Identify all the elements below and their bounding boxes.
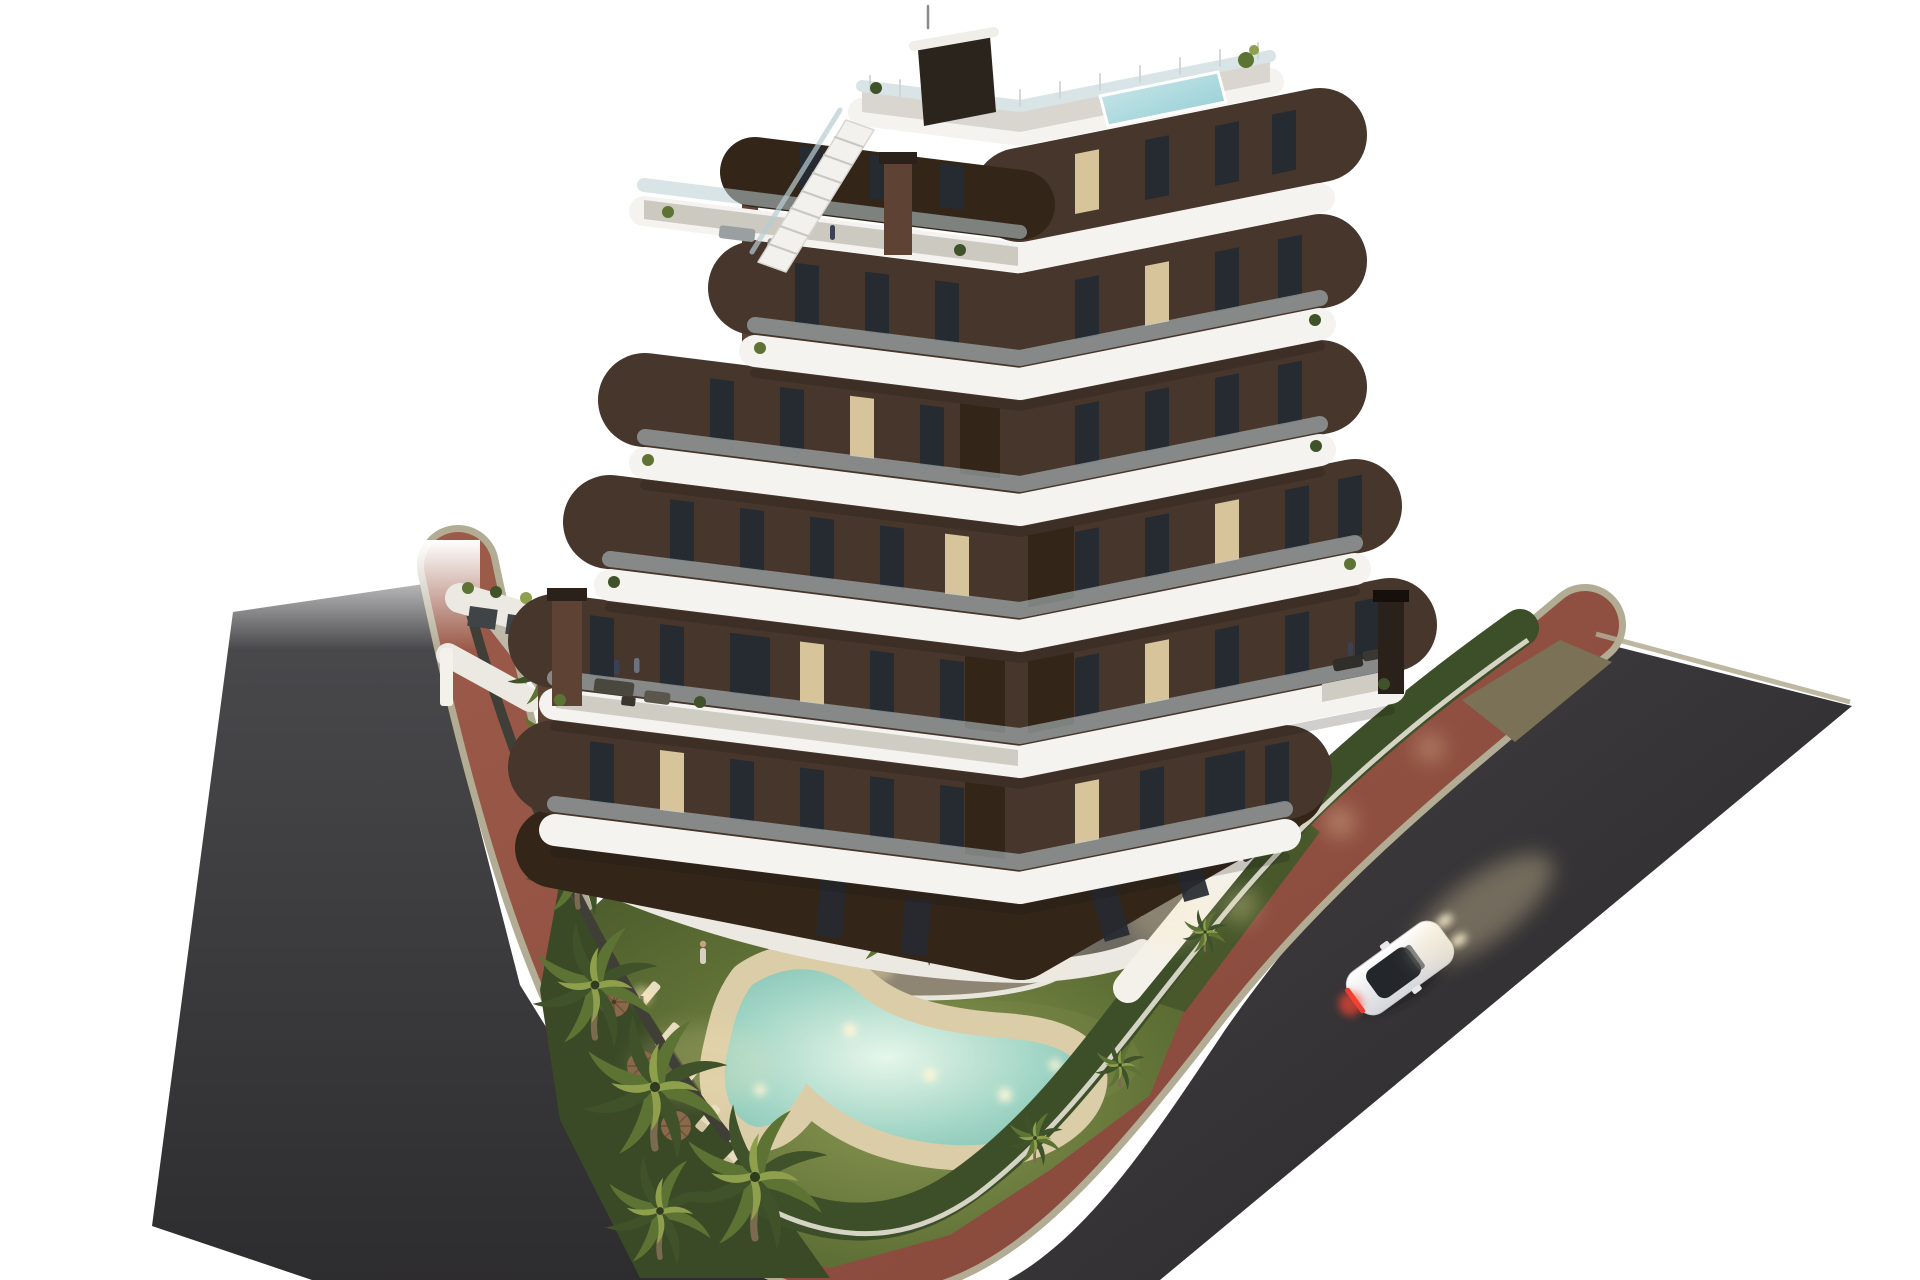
gate-pillar [440,648,453,706]
render-canvas: Aerial dusk 3D architectural rendering o… [0,0,1920,1280]
person [830,225,835,240]
architectural-render [0,0,1920,1280]
pool-person [700,941,706,964]
balcony-box [965,782,1005,859]
chimney-right [1373,590,1409,694]
person [634,658,640,673]
person [1348,642,1353,656]
chimney-left [547,588,587,706]
balcony-box [965,656,1005,733]
balcony-box [960,404,1000,479]
chimney-tower [879,152,917,255]
left-road-fade [140,540,480,650]
roof-box [914,32,996,126]
vent-grille [467,606,498,630]
balcony-plant [954,244,966,256]
balcony-plant [662,206,674,218]
person [614,660,620,675]
balcony-plant [694,696,706,708]
apartment-building [538,6,1409,956]
